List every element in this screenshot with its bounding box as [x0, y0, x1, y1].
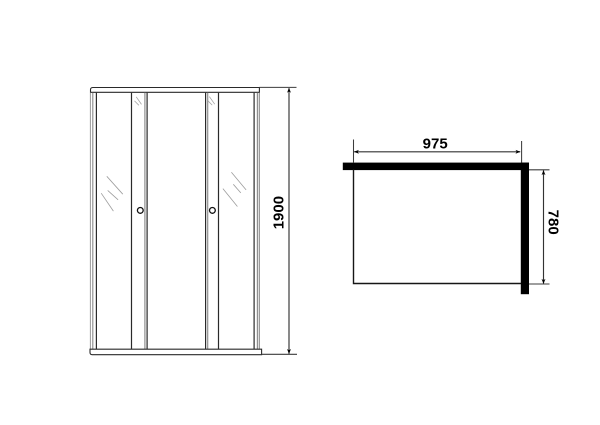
- svg-text:975: 975: [423, 136, 448, 153]
- svg-text:780: 780: [545, 210, 562, 235]
- svg-text:1900: 1900: [271, 196, 288, 229]
